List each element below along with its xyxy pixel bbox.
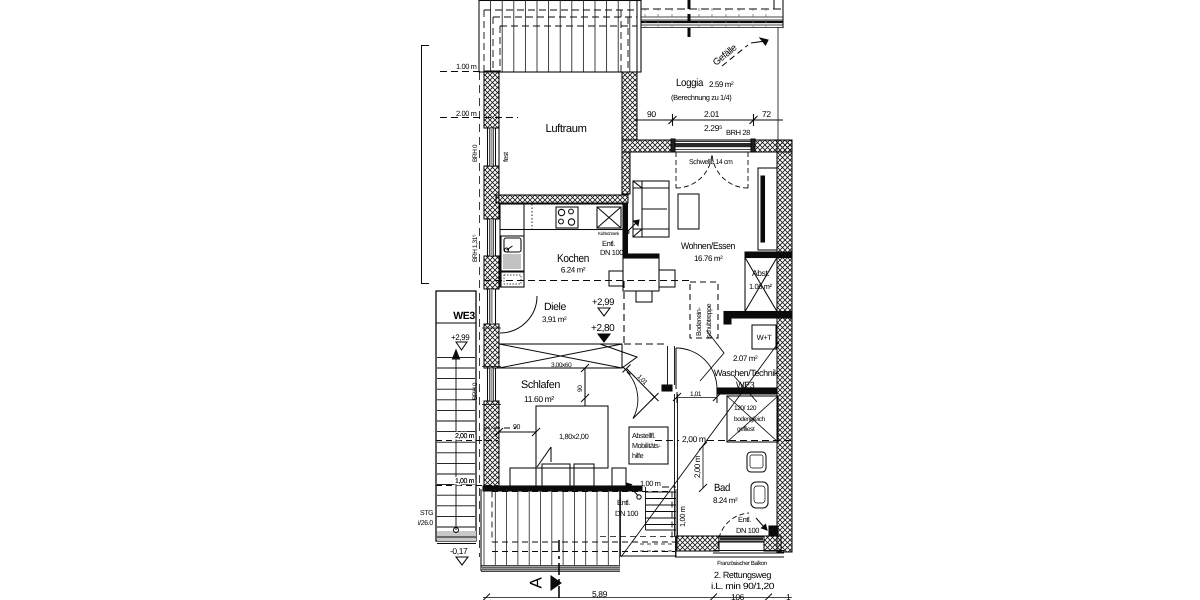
svg-text:Bodenein-: Bodenein- <box>695 307 703 336</box>
svg-text:A: A <box>526 576 545 588</box>
svg-text:90: 90 <box>647 109 656 119</box>
svg-text:bodengleich: bodengleich <box>734 416 765 423</box>
svg-text:2. Rettungsweg: 2. Rettungsweg <box>714 570 771 580</box>
svg-text:Schwelle 14 cm: Schwelle 14 cm <box>689 158 733 166</box>
svg-text:1,00 m: 1,00 m <box>678 506 687 527</box>
svg-text:Diele: Diele <box>544 301 566 313</box>
svg-text:Bad: Bad <box>714 482 731 494</box>
svg-text:Kochen: Kochen <box>557 253 589 265</box>
svg-text:11.60 m²: 11.60 m² <box>524 394 554 404</box>
svg-text:1,00 m: 1,00 m <box>640 479 661 488</box>
svg-text:Kühlschrank: Kühlschrank <box>598 231 620 236</box>
svg-text:Französischer Balkon: Französischer Balkon <box>717 560 767 567</box>
svg-text:+2,99: +2,99 <box>451 333 470 342</box>
svg-text:1,80x2,00: 1,80x2,00 <box>559 432 589 441</box>
svg-text:Abstellfl.: Abstellfl. <box>632 431 656 440</box>
svg-text:hilfe: hilfe <box>632 451 644 460</box>
svg-text:90: 90 <box>513 424 520 431</box>
svg-text:BRH 0: BRH 0 <box>472 144 479 162</box>
svg-text:fest: fest <box>502 152 510 162</box>
svg-text:Schlafen: Schlafen <box>521 379 560 391</box>
svg-text:BRH 1,31⁵: BRH 1,31⁵ <box>472 234 479 262</box>
svg-text:6.24 m²: 6.24 m² <box>561 266 586 275</box>
svg-text:STG: STG <box>420 510 433 517</box>
svg-text:5,89: 5,89 <box>592 589 608 599</box>
svg-text:DN 100: DN 100 <box>615 509 638 518</box>
svg-text:Entl.: Entl. <box>602 239 615 248</box>
svg-text:3,00x60: 3,00x60 <box>551 362 572 369</box>
svg-text:2.29⁵: 2.29⁵ <box>704 123 722 133</box>
svg-text:Mobilitäts-: Mobilitäts- <box>632 441 661 450</box>
svg-text:72: 72 <box>762 109 771 119</box>
svg-text:Waschen/Technik: Waschen/Technik <box>714 368 779 378</box>
svg-text:Abst.: Abst. <box>752 268 769 278</box>
svg-text:2.59 m²: 2.59 m² <box>709 80 734 89</box>
svg-text:gefliest: gefliest <box>737 426 755 433</box>
svg-text:2.01: 2.01 <box>704 109 720 119</box>
svg-text:+2,99: +2,99 <box>592 297 614 308</box>
svg-text:2.00 m: 2.00 m <box>456 109 477 118</box>
svg-text:Wohnen/Essen: Wohnen/Essen <box>681 241 735 252</box>
svg-text:2,00 m: 2,00 m <box>455 433 475 440</box>
svg-text:-0,17: -0,17 <box>450 546 468 556</box>
svg-text:16.76 m²: 16.76 m² <box>694 254 723 263</box>
svg-text:Loggia: Loggia <box>676 77 704 89</box>
svg-text:1: 1 <box>786 592 791 600</box>
svg-text:8.24 m²: 8.24 m² <box>713 496 738 505</box>
svg-text:120/ 120: 120/ 120 <box>734 405 757 412</box>
svg-text:(Berechnung zu 1/4): (Berechnung zu 1/4) <box>671 93 732 102</box>
svg-text:1.06 m²: 1.06 m² <box>749 282 773 291</box>
svg-text:106: 106 <box>731 592 745 600</box>
svg-text:WE3: WE3 <box>453 310 475 322</box>
svg-text:BRH 28: BRH 28 <box>726 128 750 137</box>
svg-text:DN 100: DN 100 <box>600 248 623 257</box>
svg-text:3,91 m²: 3,91 m² <box>542 315 567 324</box>
svg-text:1,00 m: 1,00 m <box>455 478 475 485</box>
svg-text:90: 90 <box>577 385 584 392</box>
svg-text:i/26.0: i/26.0 <box>418 519 433 527</box>
svg-text:2,00 m: 2,00 m <box>682 434 706 444</box>
svg-text:schubtreppe: schubtreppe <box>705 303 713 338</box>
svg-text:+2,80: +2,80 <box>591 323 615 334</box>
svg-text:Luftraum: Luftraum <box>546 123 587 135</box>
svg-text:2.07 m²: 2.07 m² <box>733 354 758 363</box>
svg-text:Entl.: Entl. <box>738 515 751 524</box>
svg-text:2,00 m: 2,00 m <box>693 455 702 478</box>
svg-text:W+T: W+T <box>757 333 773 342</box>
svg-text:1.00 m: 1.00 m <box>456 62 477 71</box>
svg-text:i.L. min 90/1,20: i.L. min 90/1,20 <box>711 581 774 591</box>
svg-text:DN 100: DN 100 <box>736 526 759 535</box>
svg-text:Entl.: Entl. <box>617 498 630 507</box>
svg-text:1,01: 1,01 <box>690 391 702 398</box>
